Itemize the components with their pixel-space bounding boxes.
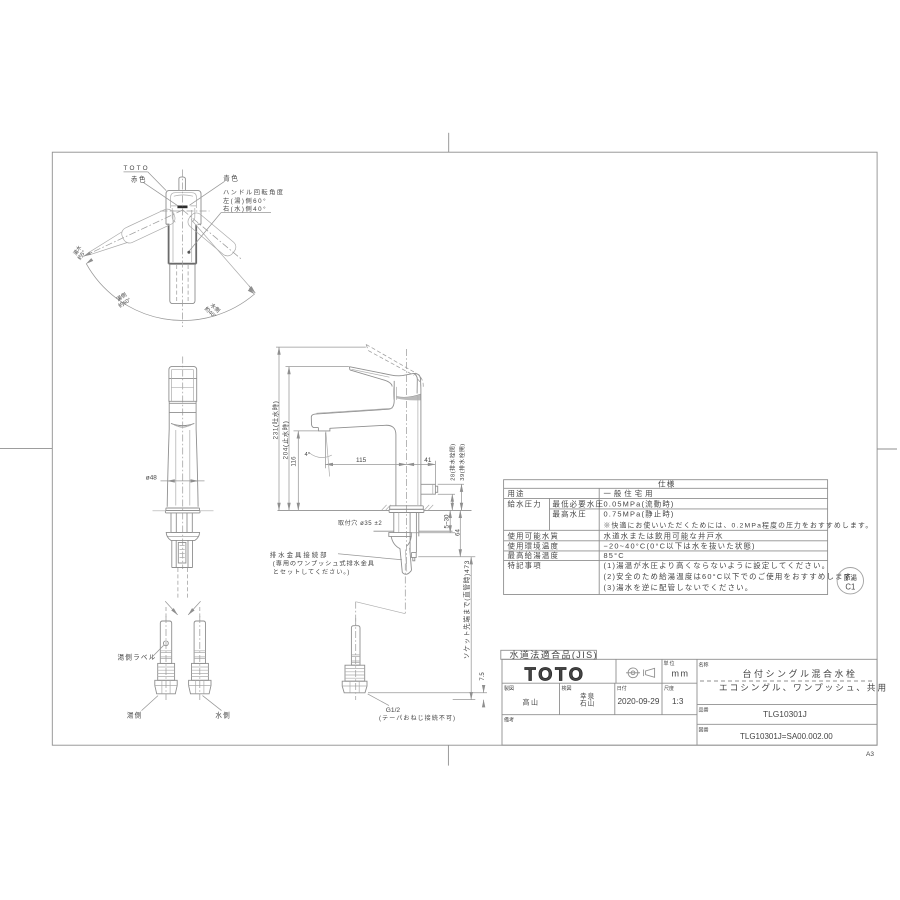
svg-text:エコシングル、ワンプッシュ、共用: エコシングル、ワンプッシュ、共用 <box>719 681 888 692</box>
svg-text:ソケット先端まで(直管時)473: ソケット先端まで(直管時)473 <box>462 560 471 659</box>
svg-text:日付: 日付 <box>617 685 627 692</box>
svg-text:尺度: 尺度 <box>664 685 674 692</box>
svg-text:仕様: 仕様 <box>658 479 676 489</box>
svg-text:最高給湯温度: 最高給湯温度 <box>508 551 560 560</box>
svg-text:備考: 備考 <box>504 717 514 724</box>
svg-text:(専用のワンプッシュ式排水金具: (専用のワンプッシュ式排水金具 <box>273 560 375 568</box>
svg-text:水側: 水側 <box>215 711 231 720</box>
svg-text:A3: A3 <box>866 751 874 758</box>
svg-text:最低必要水圧: 最低必要水圧 <box>553 499 605 508</box>
svg-text:台付シングル混合水栓: 台付シングル混合水栓 <box>743 668 858 679</box>
svg-text:製図: 製図 <box>504 685 514 692</box>
svg-text:28(排水栓閉): 28(排水栓閉) <box>449 443 457 481</box>
svg-text:TOTO: TOTO <box>124 165 150 172</box>
svg-text:2020-09-29: 2020-09-29 <box>618 697 660 706</box>
svg-text:給水圧力: 給水圧力 <box>508 499 542 508</box>
svg-text:湯側ラベル: 湯側ラベル <box>118 652 157 661</box>
svg-text:mm: mm <box>672 669 690 679</box>
svg-text:41: 41 <box>424 457 432 464</box>
svg-text:115: 115 <box>356 457 367 464</box>
svg-text:品番: 品番 <box>699 707 709 714</box>
svg-text:検図: 検図 <box>562 685 572 692</box>
svg-text:TOTO: TOTO <box>525 664 586 685</box>
svg-text:5~30: 5~30 <box>444 514 451 528</box>
svg-text:4°: 4° <box>305 452 311 458</box>
svg-text:64: 64 <box>455 529 462 536</box>
svg-text:G1/2: G1/2 <box>386 707 401 714</box>
svg-text:名称: 名称 <box>699 662 709 669</box>
svg-text:使用可能水質: 使用可能水質 <box>508 531 560 540</box>
svg-text:青色: 青色 <box>223 173 239 182</box>
svg-text:湯側: 湯側 <box>127 711 143 720</box>
svg-text:水道水または飲用可能な井戸水: 水道水または飲用可能な井戸水 <box>604 531 724 540</box>
svg-text:石山: 石山 <box>580 699 595 708</box>
svg-text:赤色: 赤色 <box>131 175 147 184</box>
svg-text:C1: C1 <box>845 583 855 592</box>
svg-text:231(吐水時): 231(吐水時) <box>271 401 280 440</box>
svg-text:図番: 図番 <box>699 727 709 734</box>
svg-text:※快適にお使いいただくためには、0.2MPa程度の圧力をおす: ※快適にお使いいただくためには、0.2MPa程度の圧力をおすすめします。 <box>604 520 874 529</box>
svg-text:TLG10301J=SA00.002.00: TLG10301J=SA00.002.00 <box>740 732 833 741</box>
svg-text:最高水圧: 最高水圧 <box>553 509 587 518</box>
svg-text:節湯: 節湯 <box>844 573 858 582</box>
svg-text:単位: 単位 <box>664 660 676 667</box>
svg-text:ø48: ø48 <box>146 475 157 482</box>
svg-text:とセットしてください。): とセットしてください。) <box>273 569 350 576</box>
svg-text:(1)湯温が水圧より高くならないように設定してください。: (1)湯温が水圧より高くならないように設定してください。 <box>604 561 831 570</box>
svg-text:0.75MPa(静止時): 0.75MPa(静止時) <box>604 509 675 518</box>
svg-text:(3)湯水を逆に配管しないでください。: (3)湯水を逆に配管しないでください。 <box>604 583 754 592</box>
svg-text:取付穴 ø35 ±2: 取付穴 ø35 ±2 <box>338 519 382 527</box>
svg-text:排水金具接続部: 排水金具接続部 <box>270 550 329 559</box>
svg-text:一般住宅用: 一般住宅用 <box>604 489 656 498</box>
svg-text:水道法適合品(JIS): 水道法適合品(JIS) <box>510 649 598 660</box>
svg-text:(テーパおねじ接続不可): (テーパおねじ接続不可) <box>379 714 456 722</box>
svg-text:用途: 用途 <box>508 489 525 498</box>
svg-text:(2)安全のため給湯温度は60°C以下でのご使用をおすすめし: (2)安全のため給湯温度は60°C以下でのご使用をおすすめします。 <box>604 572 861 581</box>
svg-text:−20~40°C(0°C以下は水を抜いた状態): −20~40°C(0°C以下は水を抜いた状態) <box>604 541 756 550</box>
svg-text:85°C: 85°C <box>604 551 625 560</box>
svg-text:特記事項: 特記事項 <box>508 561 542 570</box>
svg-text:使用環境温度: 使用環境温度 <box>508 541 560 550</box>
svg-text:高山: 高山 <box>523 698 540 707</box>
svg-text:ハンドル回転角度: ハンドル回転角度 <box>223 189 285 197</box>
svg-text:39(排水栓開): 39(排水栓開) <box>458 443 466 481</box>
svg-text:左(湯)側60°: 左(湯)側60° <box>223 197 267 205</box>
svg-text:右(水)側40°: 右(水)側40° <box>223 205 267 213</box>
svg-text:7.5: 7.5 <box>480 672 486 681</box>
svg-text:204(止水時): 204(止水時) <box>281 421 290 460</box>
svg-text:1:3: 1:3 <box>672 697 684 706</box>
svg-text:116: 116 <box>290 456 297 467</box>
svg-text:TLG10301J: TLG10301J <box>763 709 807 719</box>
svg-text:0.05MPa(流動時): 0.05MPa(流動時) <box>604 499 675 508</box>
svg-text:幸泉: 幸泉 <box>580 692 595 701</box>
